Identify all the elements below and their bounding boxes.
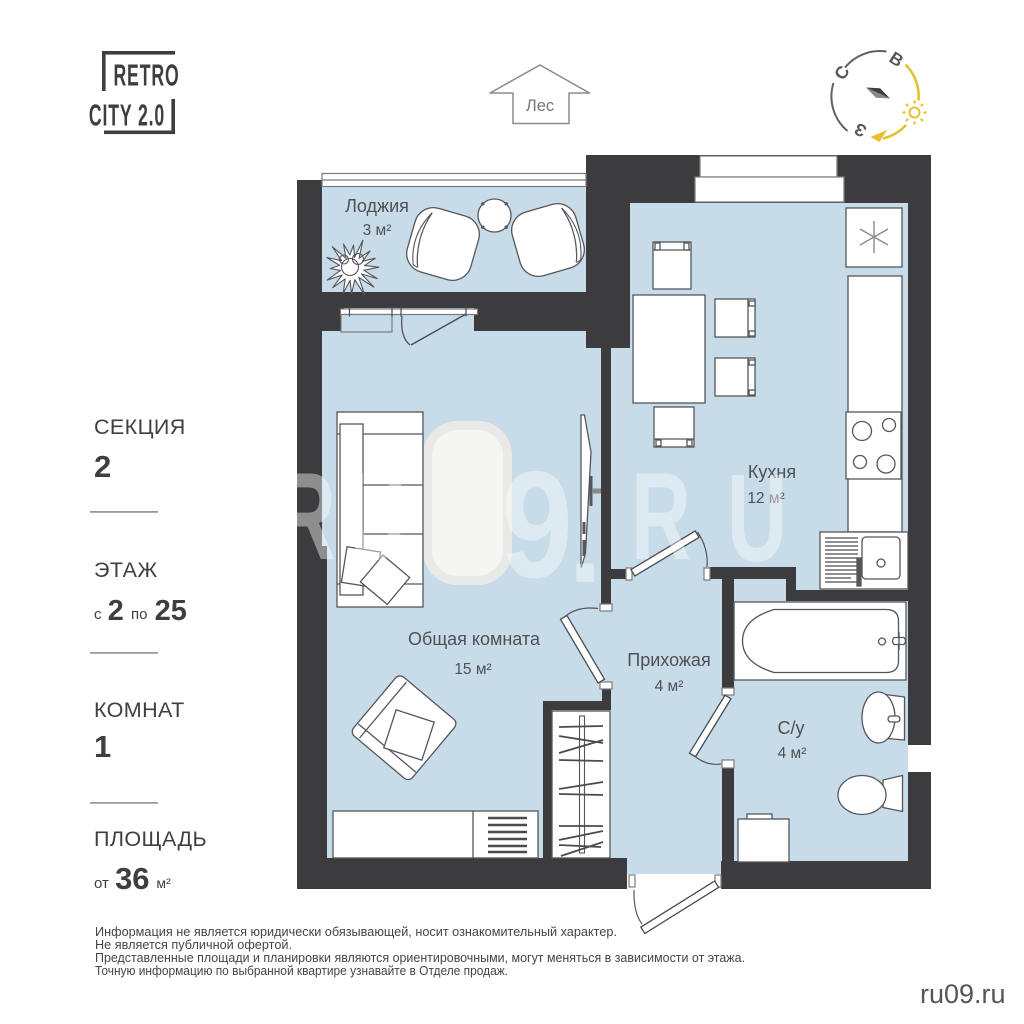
svg-text:Точную информацию по выбранной: Точную информацию по выбранной квартире … bbox=[95, 963, 508, 978]
svg-text:4 м²: 4 м² bbox=[778, 745, 807, 762]
svg-text:1: 1 bbox=[94, 729, 111, 764]
svg-text:С/у: С/у bbox=[778, 718, 805, 738]
svg-text:U: U bbox=[727, 449, 787, 588]
svg-text:от 36 м²: от 36 м² bbox=[94, 861, 171, 896]
svg-text:Лоджия: Лоджия bbox=[345, 196, 409, 216]
svg-text:R: R bbox=[276, 447, 336, 586]
svg-text:4 м²: 4 м² bbox=[655, 678, 684, 695]
svg-text:9: 9 bbox=[501, 439, 573, 609]
svg-text:.: . bbox=[568, 471, 602, 609]
svg-text:15 м²: 15 м² bbox=[454, 661, 491, 678]
svg-text:Лес: Лес bbox=[526, 97, 554, 115]
svg-text:КОМНАТ: КОМНАТ bbox=[94, 698, 185, 722]
svg-text:З: З bbox=[851, 119, 869, 142]
svg-text:R: R bbox=[631, 447, 691, 586]
svg-text:3 м²: 3 м² bbox=[363, 222, 392, 239]
svg-text:с 2 по 25: с 2 по 25 bbox=[94, 595, 187, 627]
svg-text:СЕКЦИЯ: СЕКЦИЯ bbox=[94, 415, 186, 439]
svg-text:U: U bbox=[346, 447, 406, 586]
svg-text:В: В bbox=[886, 48, 907, 72]
svg-text:ЭТАЖ: ЭТАЖ bbox=[94, 558, 158, 582]
svg-text:Общая комната: Общая комната bbox=[408, 629, 541, 649]
svg-text:RETRO: RETRO bbox=[113, 58, 179, 92]
svg-text:С: С bbox=[830, 61, 854, 83]
svg-text:2: 2 bbox=[94, 449, 111, 484]
svg-text:Прихожая: Прихожая bbox=[627, 650, 710, 670]
svg-text:CITY 2.0: CITY 2.0 bbox=[89, 98, 165, 132]
svg-text:ПЛОЩАДЬ: ПЛОЩАДЬ bbox=[94, 827, 207, 851]
svg-text:ru09.ru: ru09.ru bbox=[920, 979, 1006, 1009]
